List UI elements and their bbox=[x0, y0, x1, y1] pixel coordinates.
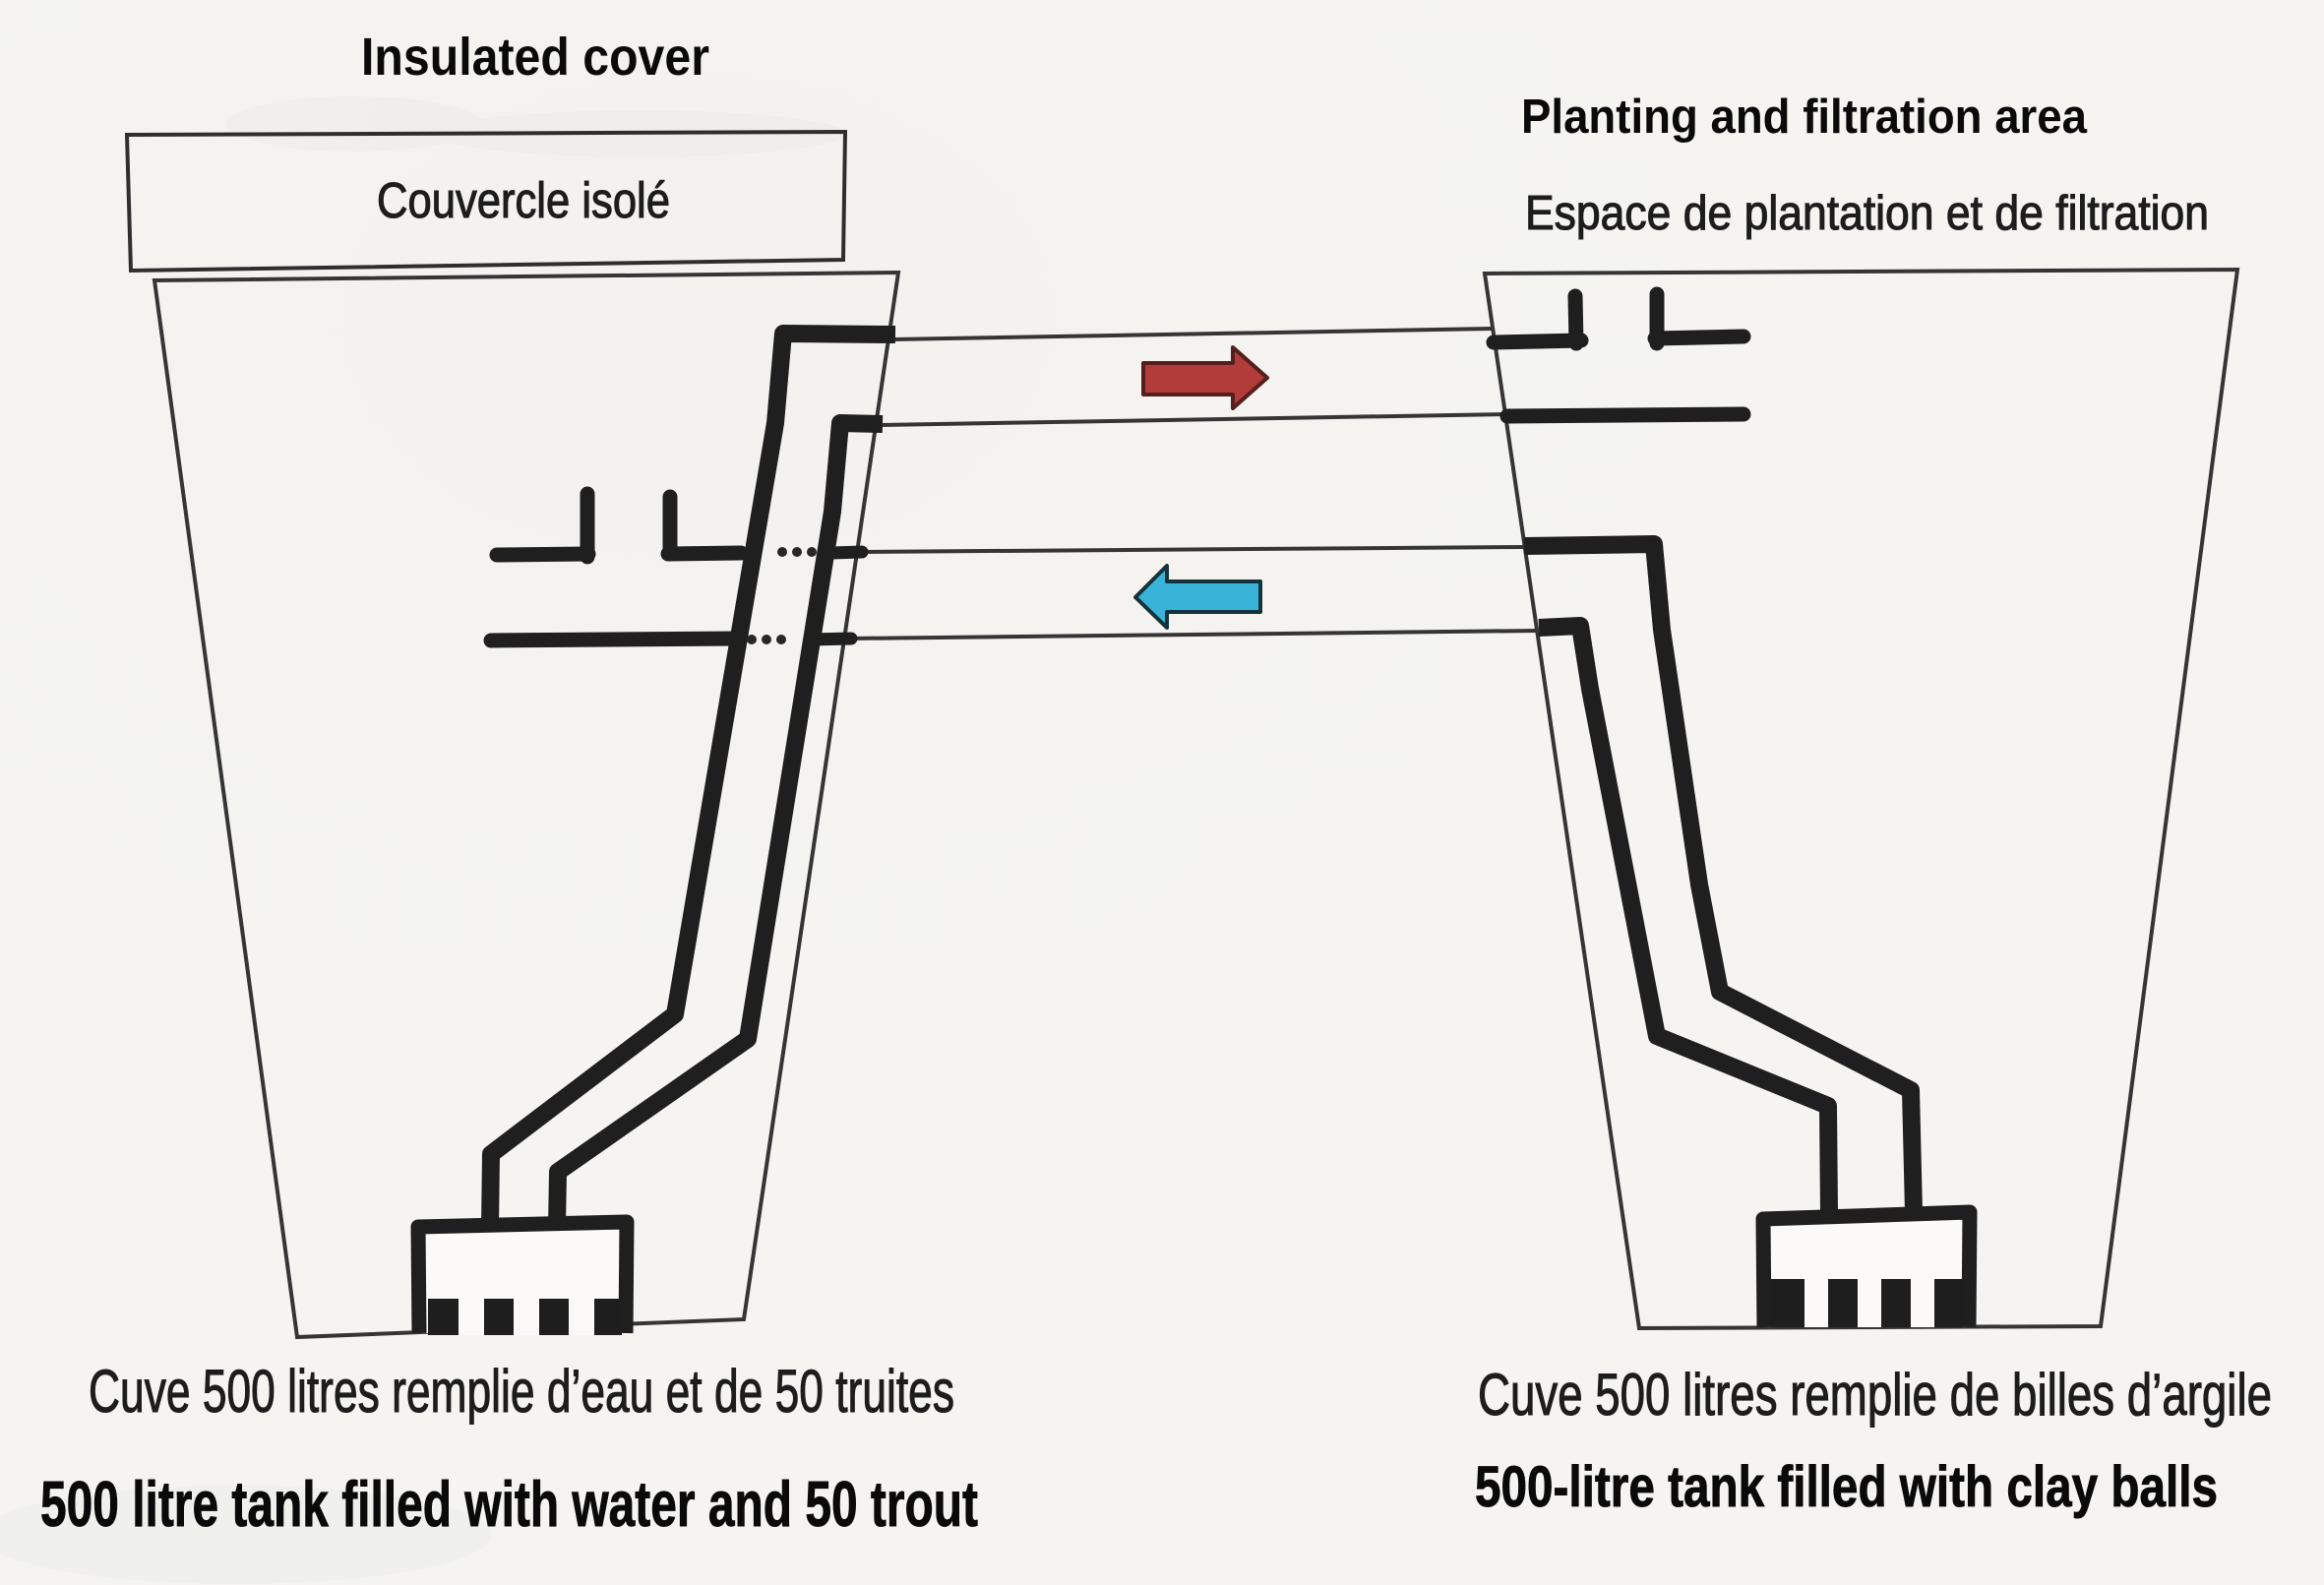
svg-text:Cuve 500 litres remplie d’eau: Cuve 500 litres remplie d’eau et de 50 t… bbox=[89, 1358, 954, 1425]
svg-text:Espace de plantation et de fil: Espace de plantation et de filtration bbox=[1525, 187, 2209, 240]
svg-text:Insulated cover: Insulated cover bbox=[361, 28, 709, 87]
svg-text:Couvercle isolé: Couvercle isolé bbox=[377, 172, 670, 228]
svg-text:500 litre tank filled with wat: 500 litre tank filled with water and 50 … bbox=[40, 1468, 978, 1540]
svg-text:Cuve 500 litres remplie de bil: Cuve 500 litres remplie de billes d’argi… bbox=[1478, 1362, 2272, 1428]
svg-text:500-litre tank filled with cla: 500-litre tank filled with clay balls bbox=[1475, 1455, 2218, 1519]
svg-text:Planting and filtration area: Planting and filtration area bbox=[1521, 91, 2088, 144]
